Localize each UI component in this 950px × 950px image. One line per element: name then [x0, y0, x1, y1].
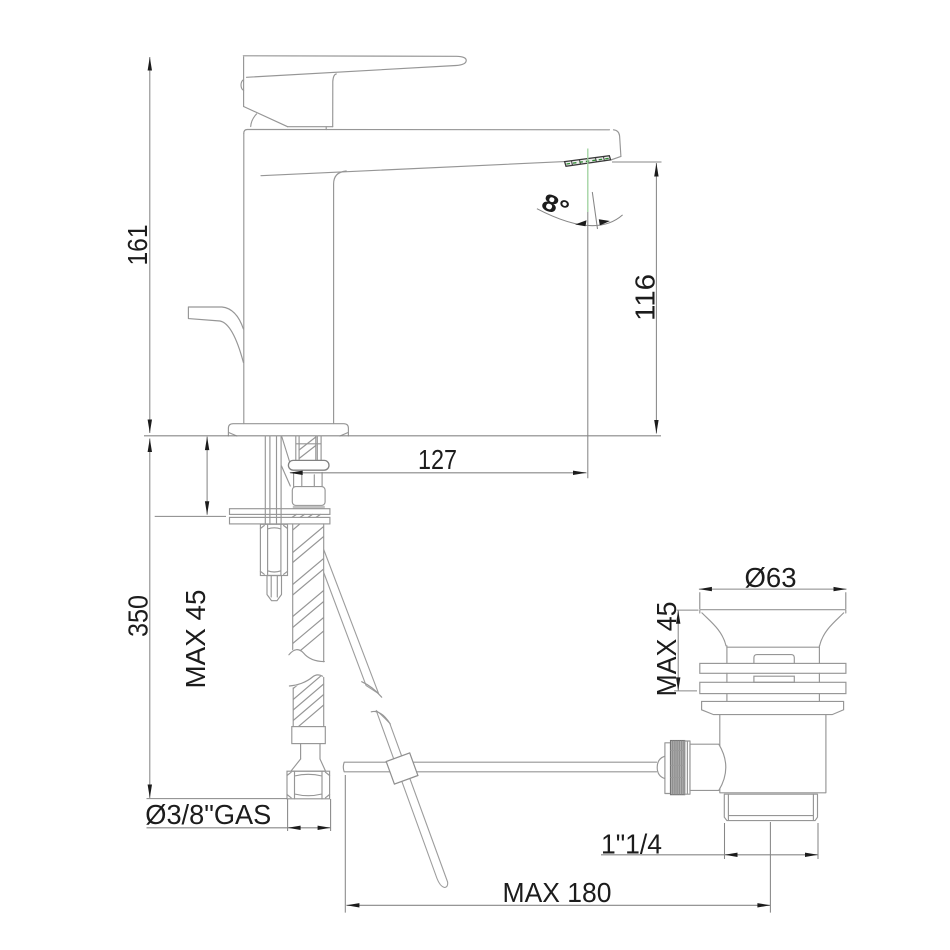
svg-text:Ø63: Ø63	[745, 562, 797, 593]
svg-text:MAX 180: MAX 180	[503, 877, 612, 908]
svg-text:127: 127	[418, 444, 457, 475]
svg-text:116: 116	[630, 274, 661, 321]
svg-text:Ø3/8"GAS: Ø3/8"GAS	[145, 799, 271, 830]
svg-text:350: 350	[123, 595, 154, 637]
svg-text:MAX 45: MAX 45	[180, 590, 211, 689]
svg-text:MAX 45: MAX 45	[651, 602, 682, 697]
svg-text:161: 161	[122, 225, 153, 266]
